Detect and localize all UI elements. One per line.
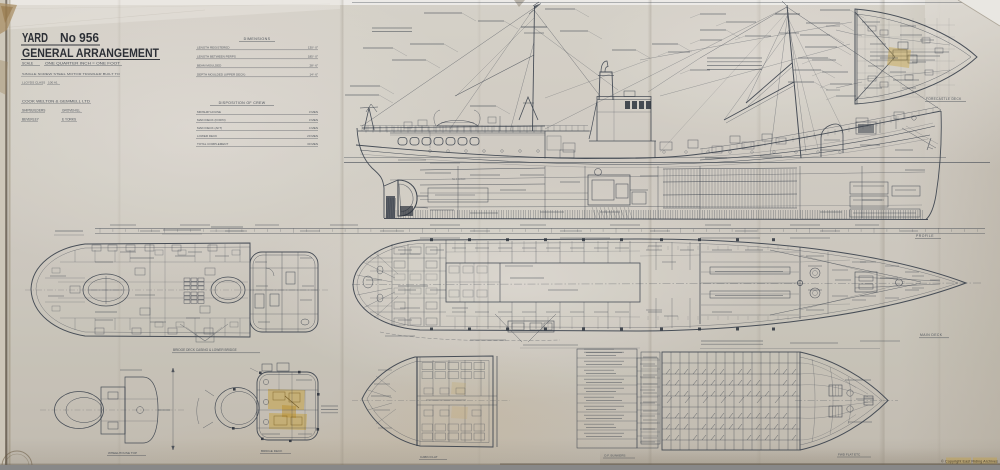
svg-text:SHIPBUILDERS: SHIPBUILDERS [22,109,45,113]
svg-text:ONE QUARTER INCH = ONE FOOT: ONE QUARTER INCH = ONE FOOT [45,62,120,66]
svg-text:SINGLE SCREW STEEL MOTOR TRAWL: SINGLE SCREW STEEL MOTOR TRAWLER BUILT T… [22,72,121,76]
svg-text:SCALE: SCALE [22,62,34,66]
svg-text:4 MEN: 4 MEN [309,126,318,130]
svg-text:28'- 6″: 28'- 6″ [310,64,318,68]
svg-text:BRIDGE DECK CASING & LOWER: BRIDGE DECK CASING & LOWER BRIDGE [173,348,237,352]
svg-text:3 MEN: 3 MEN [309,110,318,114]
svg-text:MIDSHIP HOUSE: MIDSHIP HOUSE [197,110,221,114]
svg-text:TOTAL COMPLEMENT: TOTAL COMPLEMENT [197,142,228,146]
svg-text:No 956: No 956 [60,31,99,45]
svg-text:130'- 0″: 130'- 0″ [308,46,318,50]
svg-text:185'- 0″: 185'- 0″ [308,55,318,59]
svg-text:LENGTH REGISTERED: LENGTH REGISTERED [197,46,230,50]
svg-text:DISPOSITION OF CREW: DISPOSITION OF CREW [219,101,266,105]
svg-text:BEVERLEY: BEVERLEY [22,118,40,122]
svg-text:O.F. BUNKERS: O.F. BUNKERS [604,454,626,458]
svg-text:DIMENSIONS: DIMENSIONS [244,37,271,41]
svg-text:No 1 HOLD: No 1 HOLD [452,177,466,181]
svg-text:14'- 6″: 14'- 6″ [310,73,318,77]
svg-text:LOWER DECK: LOWER DECK [197,134,217,138]
svg-text:30 MEN: 30 MEN [307,142,318,146]
svg-text:100 A1: 100 A1 [48,81,58,85]
svg-text:E YORKS: E YORKS [62,118,76,122]
svg-text:DEPTH MOULDED (UPPER DECK): DEPTH MOULDED (UPPER DECK) [197,73,245,77]
svg-text:GROVEHILL: GROVEHILL [62,109,80,113]
svg-text:WHEELHOUSE TOP: WHEELHOUSE TOP [108,451,137,455]
svg-text:MAIN DECK (FOR’D): MAIN DECK (FOR’D) [197,118,226,122]
svg-text:20 MEN: 20 MEN [307,134,318,138]
svg-text:LLOYDS CLASS: LLOYDS CLASS [22,81,45,85]
svg-text:YARD: YARD [22,31,48,45]
svg-text:FORECASTLE DECK: FORECASTLE DECK [926,97,962,101]
svg-text:LENGTH BETWEEN PERPS: LENGTH BETWEEN PERPS [197,55,236,59]
svg-text:COOK WELTON & GEMMELL LTD: COOK WELTON & GEMMELL LTD [22,100,91,104]
svg-text:BRIDGE DECK: BRIDGE DECK [261,449,283,453]
svg-text:3 MEN: 3 MEN [309,118,318,122]
svg-text:FWD FLAT ETC: FWD FLAT ETC [838,453,861,457]
svg-text:GENERAL ARRANGEMENT: GENERAL ARRANGEMENT [22,48,159,60]
svg-text:© Copyright East Riding Archiv: © Copyright East Riding Archives [941,460,998,464]
svg-text:MAIN DECK: MAIN DECK [920,333,943,337]
svg-text:MAIN DECK (AFT): MAIN DECK (AFT) [197,126,222,130]
svg-text:CABIN FLAT: CABIN FLAT [420,455,438,459]
svg-text:PROFILE: PROFILE [916,234,934,238]
svg-text:BEAM MOULDED: BEAM MOULDED [197,64,222,68]
